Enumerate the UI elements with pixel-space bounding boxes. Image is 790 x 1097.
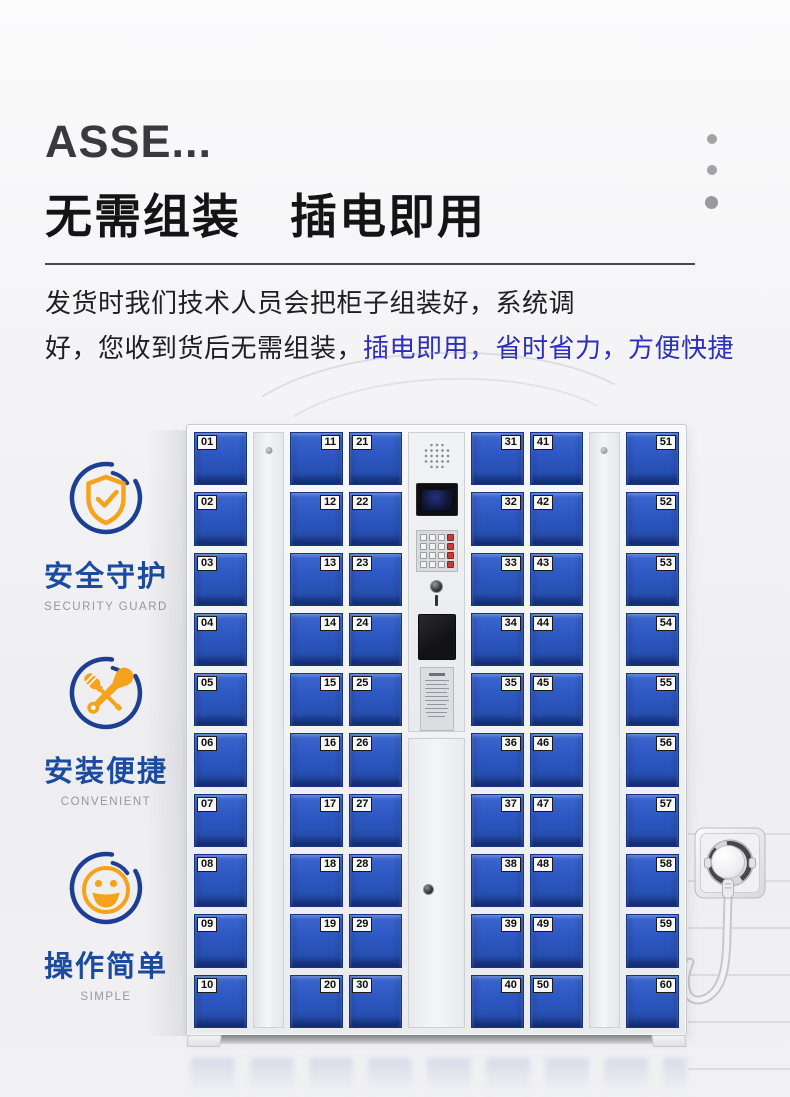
locker-door-22: 22: [349, 492, 402, 545]
keypad-red-key: [447, 543, 454, 550]
locker-door-17: 17: [290, 794, 343, 847]
locker-door-23: 23: [349, 553, 402, 606]
locker-door-12: 12: [290, 492, 343, 545]
locker-door-13: 13: [290, 553, 343, 606]
door-column-51-60: 51525354555657585960: [626, 432, 679, 1028]
feature-subtitle: SIMPLE: [80, 991, 131, 1003]
door-number-label: 41: [533, 435, 553, 450]
description-line2: 好，您收到货后无需组装，: [45, 333, 363, 363]
keypad-key: [420, 543, 427, 550]
door-number-label: 32: [501, 495, 521, 510]
door-number-label: 07: [197, 797, 217, 812]
divider-line: [45, 263, 695, 265]
locker-door-03: 03: [194, 553, 247, 606]
locker-door-27: 27: [349, 794, 402, 847]
sticker-text-line: [425, 700, 449, 702]
door-number-label: 60: [656, 978, 676, 993]
locker-door-16: 16: [290, 733, 343, 786]
locker-door-30: 30: [349, 975, 402, 1028]
door-number-label: 52: [656, 495, 676, 510]
keypad-key: [420, 561, 427, 568]
cabinet-foot: [186, 1035, 222, 1047]
door-number-label: 21: [352, 435, 372, 450]
door-number-label: 50: [533, 978, 553, 993]
locker-door-52: 52: [626, 492, 679, 545]
locker-door-44: 44: [530, 613, 583, 666]
feature-subtitle: CONVENIENT: [61, 796, 151, 808]
keypad-key: [438, 534, 445, 541]
locker-door-53: 53: [626, 553, 679, 606]
smart-locker-cabinet: 01020304050607080910 1112131415161718192…: [186, 424, 687, 1036]
locker-door-59: 59: [626, 914, 679, 967]
service-door: [408, 738, 465, 1028]
locker-door-15: 15: [290, 673, 343, 726]
locker-door-48: 48: [530, 854, 583, 907]
door-number-label: 27: [352, 797, 372, 812]
locker-door-06: 06: [194, 733, 247, 786]
door-number-label: 05: [197, 676, 217, 691]
door-column-31-40: 31323334353637383940: [471, 432, 524, 1028]
locker-door-60: 60: [626, 975, 679, 1028]
locker-door-36: 36: [471, 733, 524, 786]
locker-door-01: 01: [194, 432, 247, 485]
door-number-label: 43: [533, 556, 553, 571]
door-number-label: 47: [533, 797, 553, 812]
card-reader: [418, 614, 456, 660]
door-number-label: 33: [501, 556, 521, 571]
locker-door-38: 38: [471, 854, 524, 907]
locker-door-08: 08: [194, 854, 247, 907]
keypad-key: [429, 534, 436, 541]
door-number-label: 13: [320, 556, 340, 571]
keypad-key: [438, 543, 445, 550]
door-number-label: 51: [656, 435, 676, 450]
locker-door-04: 04: [194, 613, 247, 666]
locker-door-09: 09: [194, 914, 247, 967]
door-column-21-30: 21222324252627282930: [349, 432, 402, 1028]
page-title: 无需组装 插电即用: [45, 178, 486, 247]
locker-door-42: 42: [530, 492, 583, 545]
cabinet-body: 01020304050607080910 1112131415161718192…: [194, 432, 679, 1028]
series-title: ASSE...: [45, 116, 212, 168]
door-number-label: 01: [197, 435, 217, 450]
locker-door-57: 57: [626, 794, 679, 847]
description-line1: 发货时我们技术人员会把柜子组装好，系统调: [45, 288, 575, 318]
keypad-key: [429, 543, 436, 550]
locker-door-45: 45: [530, 673, 583, 726]
locker-door-41: 41: [530, 432, 583, 485]
decoration-dots: [705, 134, 718, 209]
dot-icon: [707, 134, 717, 144]
keypad-key: [420, 534, 427, 541]
locker-door-32: 32: [471, 492, 524, 545]
door-number-label: 49: [533, 917, 553, 932]
wall-socket: [695, 828, 765, 898]
door-number-label: 54: [656, 616, 676, 631]
door-number-label: 56: [656, 736, 676, 751]
door-number-label: 11: [321, 435, 341, 450]
locker-door-02: 02: [194, 492, 247, 545]
door-number-label: 14: [320, 616, 340, 631]
cabinet-foot: [651, 1035, 687, 1047]
door-number-label: 44: [533, 616, 553, 631]
door-number-label: 04: [197, 616, 217, 631]
locker-door-39: 39: [471, 914, 524, 967]
locker-door-58: 58: [626, 854, 679, 907]
door-number-label: 12: [320, 495, 340, 510]
door-column-11-20: 11121314151617181920: [290, 432, 343, 1028]
door-number-label: 59: [656, 917, 676, 932]
door-number-label: 19: [320, 917, 340, 932]
door-number-label: 06: [197, 736, 217, 751]
door-number-label: 58: [656, 857, 676, 872]
locker-door-24: 24: [349, 613, 402, 666]
door-number-label: 10: [197, 978, 217, 993]
keypad-key: [429, 561, 436, 568]
locker-door-07: 07: [194, 794, 247, 847]
door-number-label: 46: [533, 736, 553, 751]
sticker-text-line: [427, 704, 446, 706]
key-slot-icon: [435, 595, 438, 606]
locker-door-11: 11: [290, 432, 343, 485]
locker-door-56: 56: [626, 733, 679, 786]
smiley-face-icon: [64, 846, 148, 930]
door-number-label: 45: [533, 676, 553, 691]
control-panel: [408, 432, 465, 732]
locker-door-55: 55: [626, 673, 679, 726]
sticker-text-line: [428, 716, 445, 718]
locker-door-33: 33: [471, 553, 524, 606]
door-number-label: 40: [501, 978, 521, 993]
locker-door-54: 54: [626, 613, 679, 666]
door-number-label: 31: [501, 435, 521, 450]
door-column-41-50: 41424344454647484950: [530, 432, 583, 1028]
door-number-label: 20: [320, 978, 340, 993]
door-number-label: 38: [501, 857, 521, 872]
keypad: [416, 530, 458, 572]
locker-door-28: 28: [349, 854, 402, 907]
locker-door-18: 18: [290, 854, 343, 907]
dot-icon: [707, 165, 717, 175]
sticker-text-line: [425, 688, 449, 690]
keypad-red-key: [447, 534, 454, 541]
cabinet-base: [207, 1035, 666, 1044]
sticker-text-line: [426, 684, 447, 686]
door-number-label: 08: [197, 857, 217, 872]
lcd-panel: [422, 490, 452, 510]
shield-check-icon: [64, 456, 148, 540]
sticker-title-line: [429, 673, 445, 676]
door-number-label: 15: [320, 676, 340, 691]
locker-door-43: 43: [530, 553, 583, 606]
locker-door-25: 25: [349, 673, 402, 726]
locker-door-50: 50: [530, 975, 583, 1028]
door-number-label: 09: [197, 917, 217, 932]
keypad-key: [438, 552, 445, 559]
locker-door-14: 14: [290, 613, 343, 666]
locker-door-10: 10: [194, 975, 247, 1028]
keypad-key: [429, 552, 436, 559]
keypad-key: [420, 552, 427, 559]
door-number-label: 34: [501, 616, 521, 631]
instruction-sticker: [420, 667, 454, 731]
locker-door-49: 49: [530, 914, 583, 967]
door-number-label: 24: [352, 616, 372, 631]
sticker-text-line: [425, 708, 448, 710]
door-number-label: 25: [352, 676, 372, 691]
locker-door-47: 47: [530, 794, 583, 847]
sticker-text-line: [426, 692, 446, 694]
key-lock-icon: [430, 580, 443, 593]
frame-strip: [589, 432, 620, 1028]
keyhole-icon: [423, 884, 434, 895]
speaker-grille-icon: [422, 443, 452, 469]
keypad-red-key: [447, 552, 454, 559]
control-column: [408, 432, 465, 1028]
keypad-key: [438, 561, 445, 568]
door-number-label: 42: [533, 495, 553, 510]
power-plug: [712, 846, 745, 879]
dot-icon: [705, 196, 718, 209]
sticker-text-line: [425, 696, 448, 698]
door-number-label: 48: [533, 857, 553, 872]
product-detail-page: ASSE... 无需组装 插电即用 发货时我们技术人员会把柜子组装好，系统调 好…: [0, 0, 790, 1097]
door-number-label: 16: [320, 736, 340, 751]
door-number-label: 26: [352, 736, 372, 751]
door-number-label: 03: [197, 556, 217, 571]
door-number-label: 23: [352, 556, 372, 571]
locker-door-20: 20: [290, 975, 343, 1028]
locker-door-29: 29: [349, 914, 402, 967]
door-number-label: 35: [501, 676, 521, 691]
door-number-label: 57: [656, 797, 676, 812]
door-number-label: 29: [352, 917, 372, 932]
door-number-label: 53: [656, 556, 676, 571]
door-column-01-10: 01020304050607080910: [194, 432, 247, 1028]
screw-icon: [601, 447, 608, 454]
sticker-text-line: [426, 712, 448, 714]
door-number-label: 17: [320, 797, 340, 812]
locker-door-51: 51: [626, 432, 679, 485]
door-number-label: 36: [501, 736, 521, 751]
door-number-label: 02: [197, 495, 217, 510]
door-number-label: 28: [352, 857, 372, 872]
door-number-label: 22: [352, 495, 372, 510]
floor-reflection: [186, 1058, 687, 1097]
locker-door-37: 37: [471, 794, 524, 847]
locker-door-19: 19: [290, 914, 343, 967]
sticker-text-line: [425, 680, 449, 682]
door-number-label: 30: [352, 978, 372, 993]
locker-door-46: 46: [530, 733, 583, 786]
door-number-label: 55: [656, 676, 676, 691]
door-number-label: 18: [320, 857, 340, 872]
frame-strip: [253, 432, 284, 1028]
wall-shadow: [146, 430, 186, 1036]
crossed-tools-icon: [64, 651, 148, 735]
locker-door-40: 40: [471, 975, 524, 1028]
locker-door-35: 35: [471, 673, 524, 726]
door-number-label: 37: [501, 797, 521, 812]
locker-door-31: 31: [471, 432, 524, 485]
locker-door-05: 05: [194, 673, 247, 726]
locker-door-26: 26: [349, 733, 402, 786]
keypad-red-key: [447, 561, 454, 568]
locker-door-21: 21: [349, 432, 402, 485]
locker-door-34: 34: [471, 613, 524, 666]
power-cable: [685, 900, 728, 1000]
display-screen: [416, 483, 458, 516]
door-number-label: 39: [501, 917, 521, 932]
screw-icon: [265, 447, 272, 454]
